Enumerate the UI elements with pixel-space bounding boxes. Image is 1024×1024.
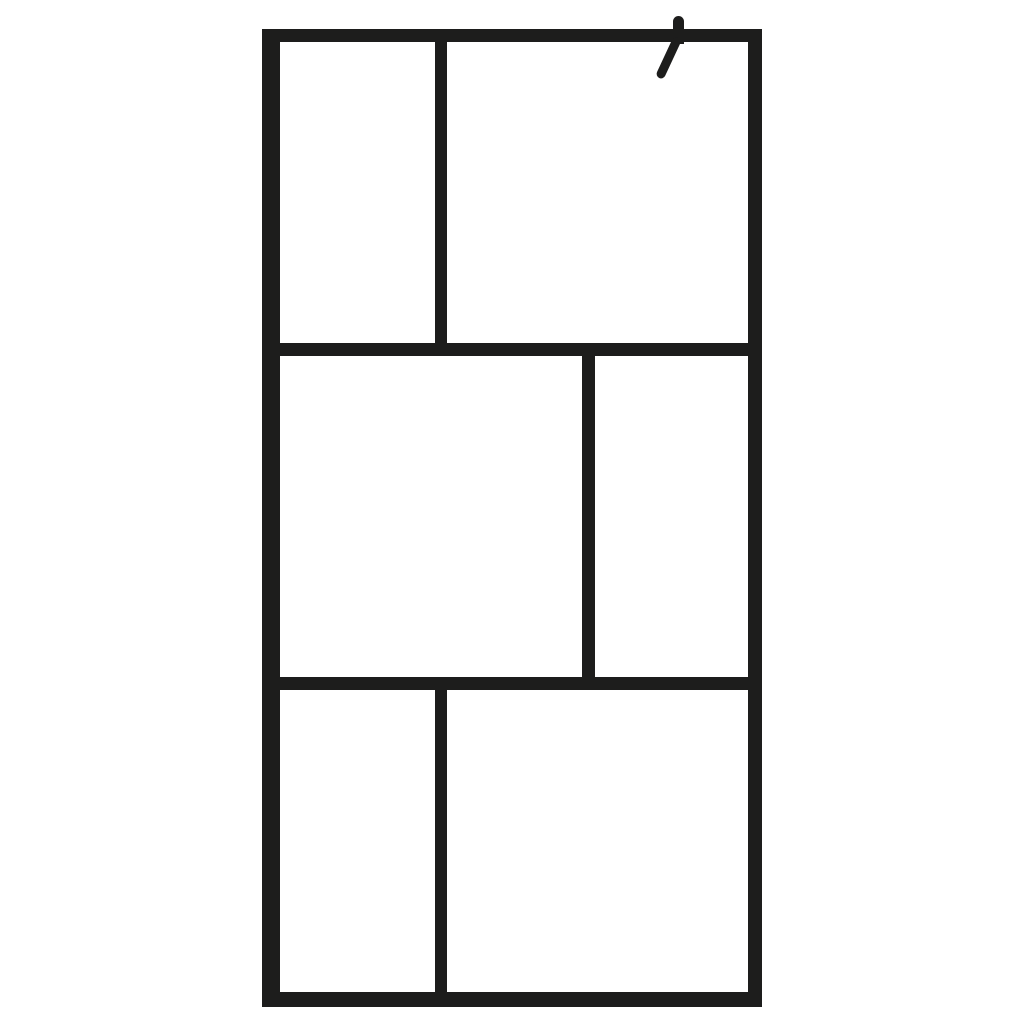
- glass-panel: [447, 690, 748, 992]
- glass-panel: [595, 356, 748, 677]
- shower-screen-frame: [262, 29, 762, 1007]
- vertical-divider-top-row: [435, 41, 447, 344]
- product-photo-canvas: [0, 0, 1024, 1024]
- horizontal-divider-upper: [262, 343, 762, 356]
- vertical-divider-bottom-row: [435, 689, 447, 993]
- frame-bottom-bar: [262, 992, 762, 1007]
- wall-profile-left-bar: [262, 29, 280, 1007]
- frame-right-bar: [748, 29, 762, 1007]
- glass-panel: [280, 42, 435, 343]
- horizontal-divider-lower: [262, 677, 762, 690]
- glass-panel: [447, 42, 748, 343]
- frame-top-bar: [262, 29, 762, 42]
- glass-panel: [280, 690, 435, 992]
- vertical-divider-middle-row: [582, 355, 595, 678]
- glass-panel: [280, 356, 582, 677]
